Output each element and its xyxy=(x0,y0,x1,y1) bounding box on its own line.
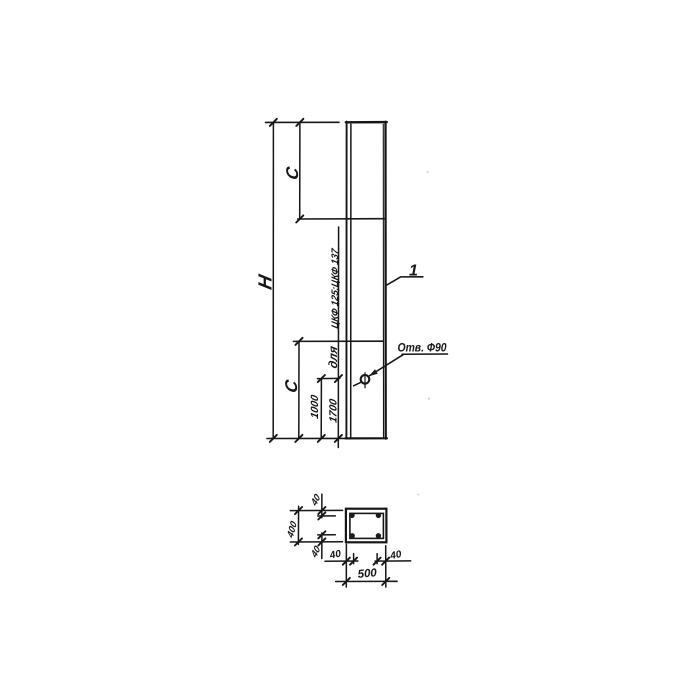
svg-text:1700: 1700 xyxy=(327,398,339,424)
svg-text:400: 400 xyxy=(285,519,299,541)
svg-text:1: 1 xyxy=(409,263,418,280)
svg-text:для: для xyxy=(326,345,340,370)
svg-text:40: 40 xyxy=(309,491,323,509)
svg-text:1000: 1000 xyxy=(309,394,321,420)
svg-text:ЦКФ 125;ЦКФ 137: ЦКФ 125;ЦКФ 137 xyxy=(330,247,341,330)
svg-text:40: 40 xyxy=(309,543,323,561)
svg-text:40: 40 xyxy=(328,548,343,561)
svg-text:C: C xyxy=(282,164,302,181)
svg-text:500: 500 xyxy=(357,567,378,581)
svg-text:Отв. Ф90: Отв. Ф90 xyxy=(398,341,447,355)
svg-text:C: C xyxy=(281,377,301,394)
